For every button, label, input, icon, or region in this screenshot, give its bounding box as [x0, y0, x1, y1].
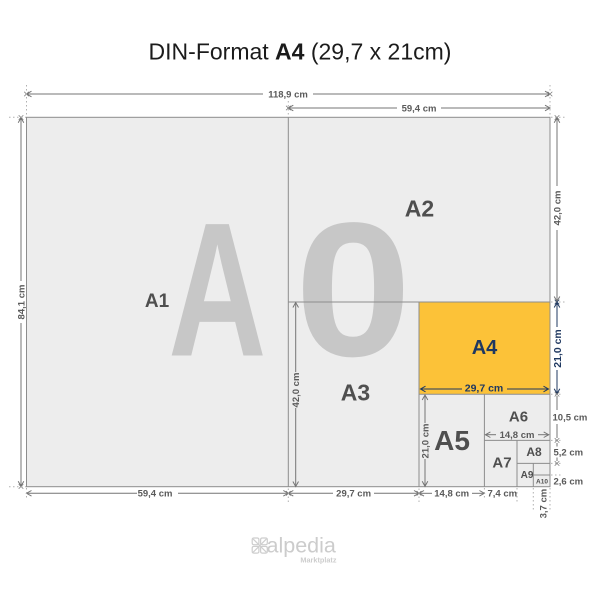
- svg-text:A2: A2: [405, 195, 434, 221]
- svg-text:59,4 cm: 59,4 cm: [402, 103, 437, 114]
- svg-text:59,4 cm: 59,4 cm: [138, 489, 173, 500]
- svg-text:42,0 cm: 42,0 cm: [291, 373, 302, 408]
- svg-text:7,4 cm: 7,4 cm: [488, 489, 518, 500]
- svg-text:DIN-Format A4 (29,7 x 21cm): DIN-Format A4 (29,7 x 21cm): [149, 39, 452, 65]
- svg-text:A7: A7: [492, 454, 511, 471]
- svg-text:118,9 cm: 118,9 cm: [268, 89, 308, 100]
- svg-text:A1: A1: [145, 291, 170, 312]
- svg-text:42,0 cm: 42,0 cm: [552, 191, 563, 226]
- svg-text:A8: A8: [526, 445, 542, 459]
- svg-text:10,5 cm: 10,5 cm: [553, 413, 588, 424]
- svg-text:Marktplatz: Marktplatz: [300, 556, 336, 565]
- svg-text:A: A: [168, 184, 266, 397]
- svg-text:14,8 cm: 14,8 cm: [434, 489, 469, 500]
- svg-text:A4: A4: [472, 337, 498, 359]
- svg-text:A3: A3: [341, 379, 370, 405]
- svg-text:3,7 cm: 3,7 cm: [539, 489, 550, 519]
- svg-text:A6: A6: [509, 408, 528, 425]
- svg-text:A5: A5: [434, 425, 470, 456]
- svg-text:21,0 cm: 21,0 cm: [420, 424, 431, 459]
- svg-text:2,6 cm: 2,6 cm: [554, 477, 584, 488]
- svg-text:A10: A10: [536, 478, 548, 485]
- svg-text:5,2 cm: 5,2 cm: [554, 448, 584, 459]
- svg-text:29,7 cm: 29,7 cm: [465, 383, 504, 395]
- svg-text:21,0 cm: 21,0 cm: [552, 329, 564, 368]
- svg-text:14,8 cm: 14,8 cm: [500, 430, 535, 441]
- svg-text:0: 0: [295, 182, 412, 396]
- svg-text:alpedia: alpedia: [267, 533, 336, 557]
- svg-text:A9: A9: [521, 470, 534, 481]
- svg-text:84,1 cm: 84,1 cm: [16, 285, 27, 320]
- svg-text:29,7 cm: 29,7 cm: [336, 489, 371, 500]
